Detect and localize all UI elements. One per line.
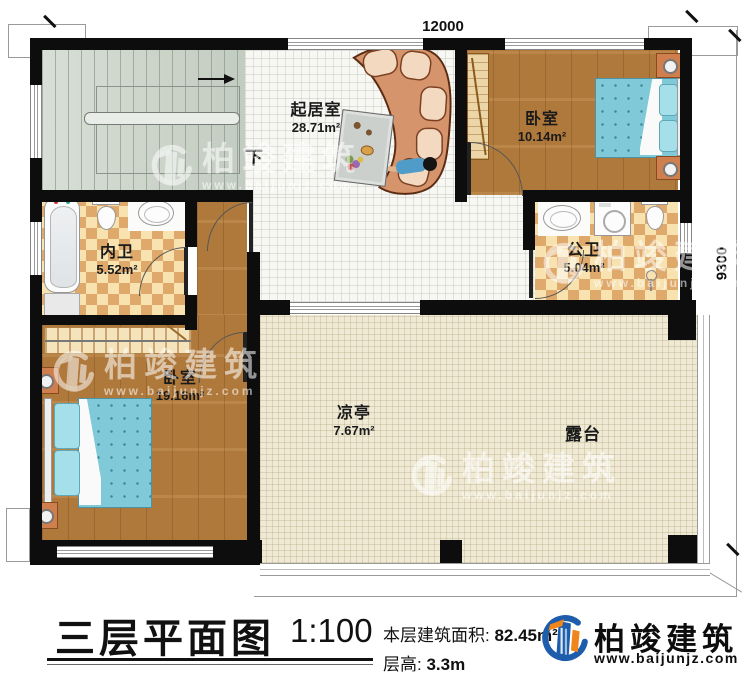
floorplan-page: 起居室 28.71m² 卧室 10.14m² 内卫 5.52m² 公卫 5.04…: [0, 0, 750, 681]
wall: [455, 50, 467, 202]
table-bowl: [360, 145, 374, 157]
bed-sheet-fold: [79, 399, 101, 505]
room-name: 露台: [565, 420, 601, 445]
terrace-railing: [697, 315, 710, 575]
wall: [30, 38, 288, 50]
room-area: 5.04m²: [563, 260, 604, 275]
sink: [138, 200, 174, 226]
person-head: [423, 157, 437, 171]
eave-outline: [6, 508, 30, 562]
terrace-pavilion-floor: [260, 315, 697, 563]
stair-handrail: [84, 112, 240, 125]
eave-line: [254, 596, 737, 597]
room-area: 19.16m²: [156, 388, 204, 403]
bed-headboard: [44, 398, 52, 506]
bathtub-basin: [50, 206, 77, 288]
dimension-height: 9300: [714, 236, 731, 292]
wall: [30, 315, 192, 325]
wall: [185, 195, 197, 247]
wall: [30, 190, 253, 202]
window: [288, 38, 423, 50]
room-area: 5.52m²: [96, 262, 137, 277]
brand-url: www.baijunjz.com: [594, 650, 739, 666]
flower-decor: [347, 163, 355, 171]
room-area: 7.67m²: [333, 423, 374, 438]
pillow: [54, 403, 80, 449]
wall: [423, 38, 505, 50]
flower-decor: [357, 156, 364, 163]
door-leaf: [529, 250, 533, 298]
sliding-door: [290, 302, 420, 314]
floor-drain-stem: [650, 279, 652, 291]
room-name: 内卫: [96, 238, 137, 262]
window: [30, 85, 42, 158]
closet-rod: [45, 340, 191, 342]
washer-door: [603, 210, 626, 233]
stair-down-label: 下: [245, 144, 263, 170]
table-item: [366, 129, 373, 136]
wall: [523, 190, 692, 202]
room-name: 起居室: [290, 96, 341, 120]
washing-machine: [594, 200, 631, 236]
window: [680, 223, 692, 253]
bathtub: [44, 197, 80, 293]
room-label-bedroom2: 卧室 19.16m²: [156, 364, 204, 403]
wall: [30, 38, 42, 85]
floor-area-row: 本层建筑面积: 82.45m²: [383, 621, 558, 646]
floor-area-label: 本层建筑面积:: [383, 626, 490, 645]
terrace-railing: [260, 563, 710, 576]
room-label-terrace: 露台: [565, 420, 601, 445]
wall: [247, 252, 260, 563]
closet-hangers: [44, 327, 192, 354]
floor-height-label: 层高:: [383, 655, 422, 674]
room-name: 卧室: [156, 364, 204, 388]
stair-direction-arrow-icon: [224, 74, 235, 84]
pillow: [659, 120, 678, 152]
room-label-living: 起居室 28.71m²: [290, 96, 341, 135]
window: [57, 546, 213, 558]
window: [30, 222, 42, 275]
sink: [543, 205, 581, 231]
drawing-scale: 1:100: [290, 612, 373, 650]
floor-height-value: 3.3m: [426, 655, 465, 674]
pillow: [659, 84, 678, 116]
room-label-ensuite: 内卫 5.52m²: [96, 238, 137, 277]
living-room-floor: [253, 195, 535, 302]
title-underline: [47, 658, 373, 661]
room-name: 公卫: [563, 236, 604, 260]
dimension-tick: [685, 10, 698, 23]
room-name: 凉亭: [333, 399, 374, 423]
title-underline-thin: [47, 664, 373, 665]
pillow: [54, 450, 80, 496]
stair-direction-line: [198, 78, 224, 80]
room-name: 卧室: [518, 105, 566, 129]
brand-logo-icon: [538, 612, 590, 668]
column: [668, 300, 696, 340]
dimension-width: 12000: [413, 18, 473, 35]
table-item: [353, 122, 361, 130]
floor-height-row: 层高: 3.3m: [383, 650, 465, 675]
room-label-publicbath: 公卫 5.04m²: [563, 236, 604, 275]
nightstand: [656, 53, 683, 78]
room-label-pavilion: 凉亭 7.67m²: [333, 399, 374, 438]
drawing-title: 三层平面图: [55, 606, 275, 664]
wardrobe-rod: [471, 58, 486, 155]
dimension-tick: [726, 543, 739, 556]
window: [505, 38, 644, 50]
coffee-table: [334, 109, 394, 187]
room-area: 28.71m²: [290, 120, 341, 135]
sink-basin: [144, 206, 170, 223]
eave-line: [736, 30, 737, 597]
room-area: 10.14m²: [518, 129, 566, 144]
wall: [523, 202, 535, 250]
stair-landing-outline: [96, 86, 240, 174]
floor-drain: [646, 270, 657, 281]
sink-basin: [550, 211, 577, 228]
washer-panel: [599, 203, 611, 207]
wall: [420, 300, 692, 315]
nightstand: [656, 156, 683, 180]
room-label-bedroom1: 卧室 10.14m²: [518, 105, 566, 144]
